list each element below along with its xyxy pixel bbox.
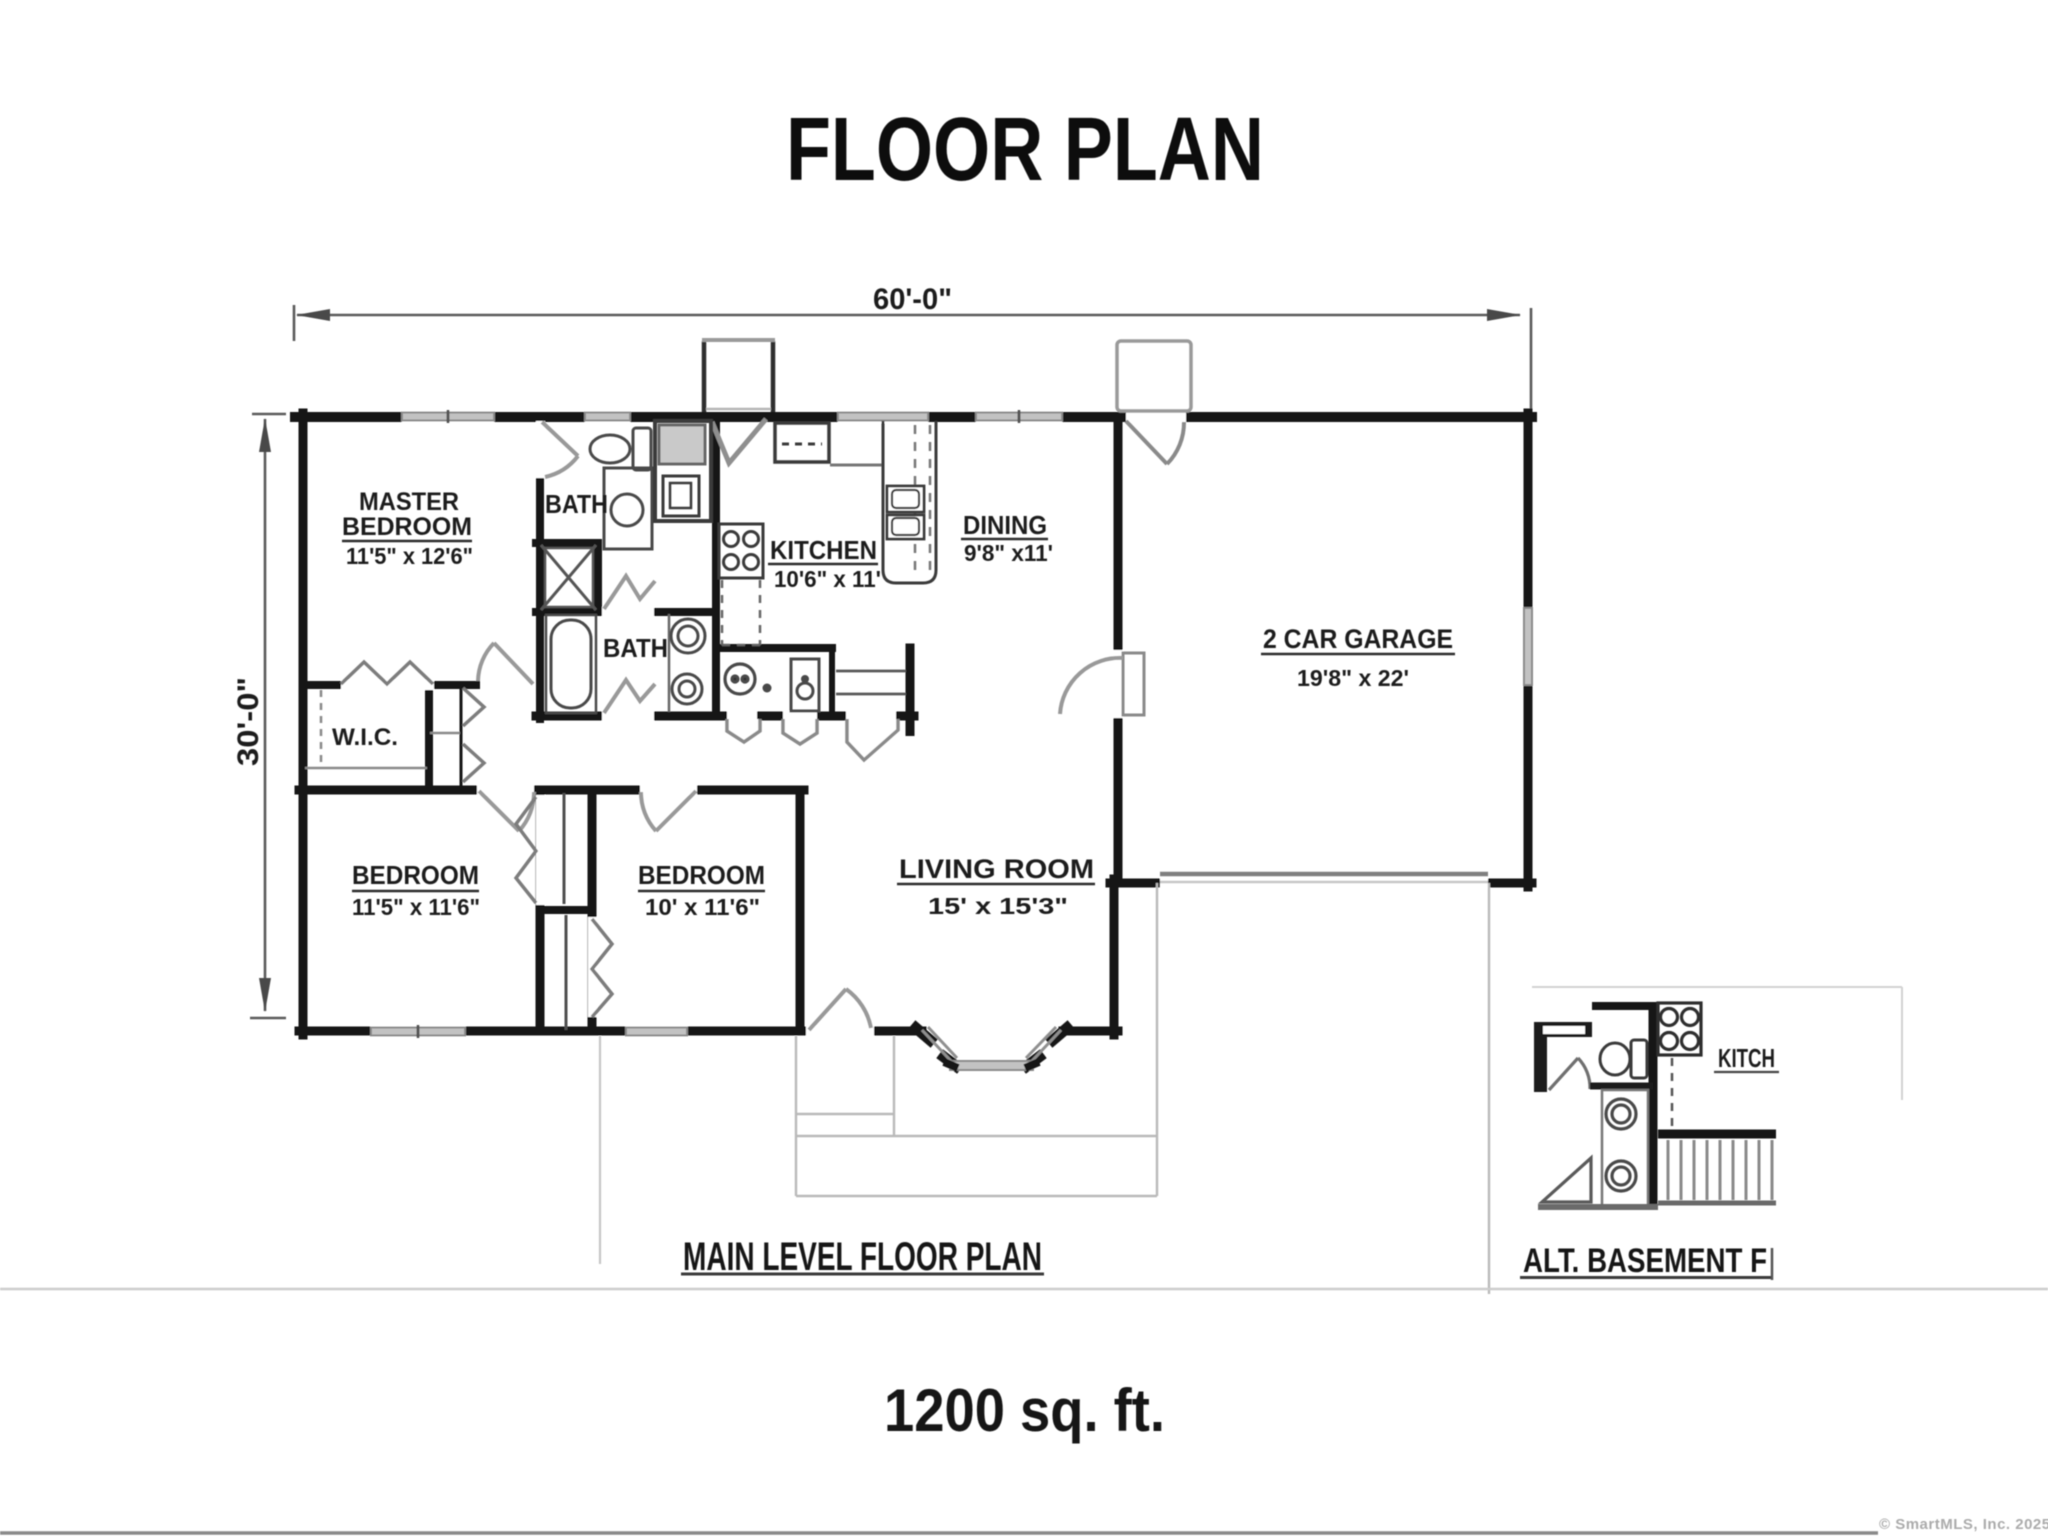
svg-text:BEDROOM: BEDROOM: [638, 860, 765, 890]
svg-text:11'5" x 12'6": 11'5" x 12'6": [346, 543, 473, 569]
svg-text:9'8" x11': 9'8" x11': [964, 540, 1053, 566]
svg-text:BEDROOM: BEDROOM: [352, 860, 479, 890]
svg-text:FLOOR PLAN: FLOOR PLAN: [786, 100, 1264, 200]
svg-text:DINING: DINING: [963, 510, 1047, 540]
svg-text:MASTER: MASTER: [359, 488, 459, 516]
svg-text:KITCHEN: KITCHEN: [770, 535, 877, 565]
svg-text:1200 sq. ft.: 1200 sq. ft.: [884, 1377, 1165, 1444]
svg-text:2 CAR GARAGE: 2 CAR GARAGE: [1263, 624, 1453, 654]
svg-text:ALT. BASEMENT F: ALT. BASEMENT F: [1523, 1242, 1767, 1280]
svg-text:60'-0": 60'-0": [873, 283, 952, 316]
svg-text:30'-0": 30'-0": [232, 677, 265, 766]
svg-text:BATH: BATH: [545, 489, 608, 519]
svg-text:© SmartMLS, Inc. 2025: © SmartMLS, Inc. 2025: [1879, 1516, 2048, 1533]
svg-text:19'8" x 22': 19'8" x 22': [1297, 665, 1409, 691]
svg-text:MAIN LEVEL FLOOR PLAN: MAIN LEVEL FLOOR PLAN: [683, 1235, 1042, 1279]
svg-text:KITCH: KITCH: [1718, 1043, 1775, 1073]
svg-text:10'6" x 11': 10'6" x 11': [774, 566, 881, 592]
svg-text:W.I.C.: W.I.C.: [332, 724, 398, 751]
svg-text:BATH: BATH: [603, 633, 668, 663]
svg-text:15' x 15'3": 15' x 15'3": [928, 893, 1068, 919]
svg-text:11'5" x 11'6": 11'5" x 11'6": [352, 894, 480, 920]
svg-text:10' x 11'6": 10' x 11'6": [645, 894, 760, 920]
svg-text:LIVING ROOM: LIVING ROOM: [899, 854, 1094, 884]
svg-text:BEDROOM: BEDROOM: [342, 513, 472, 541]
